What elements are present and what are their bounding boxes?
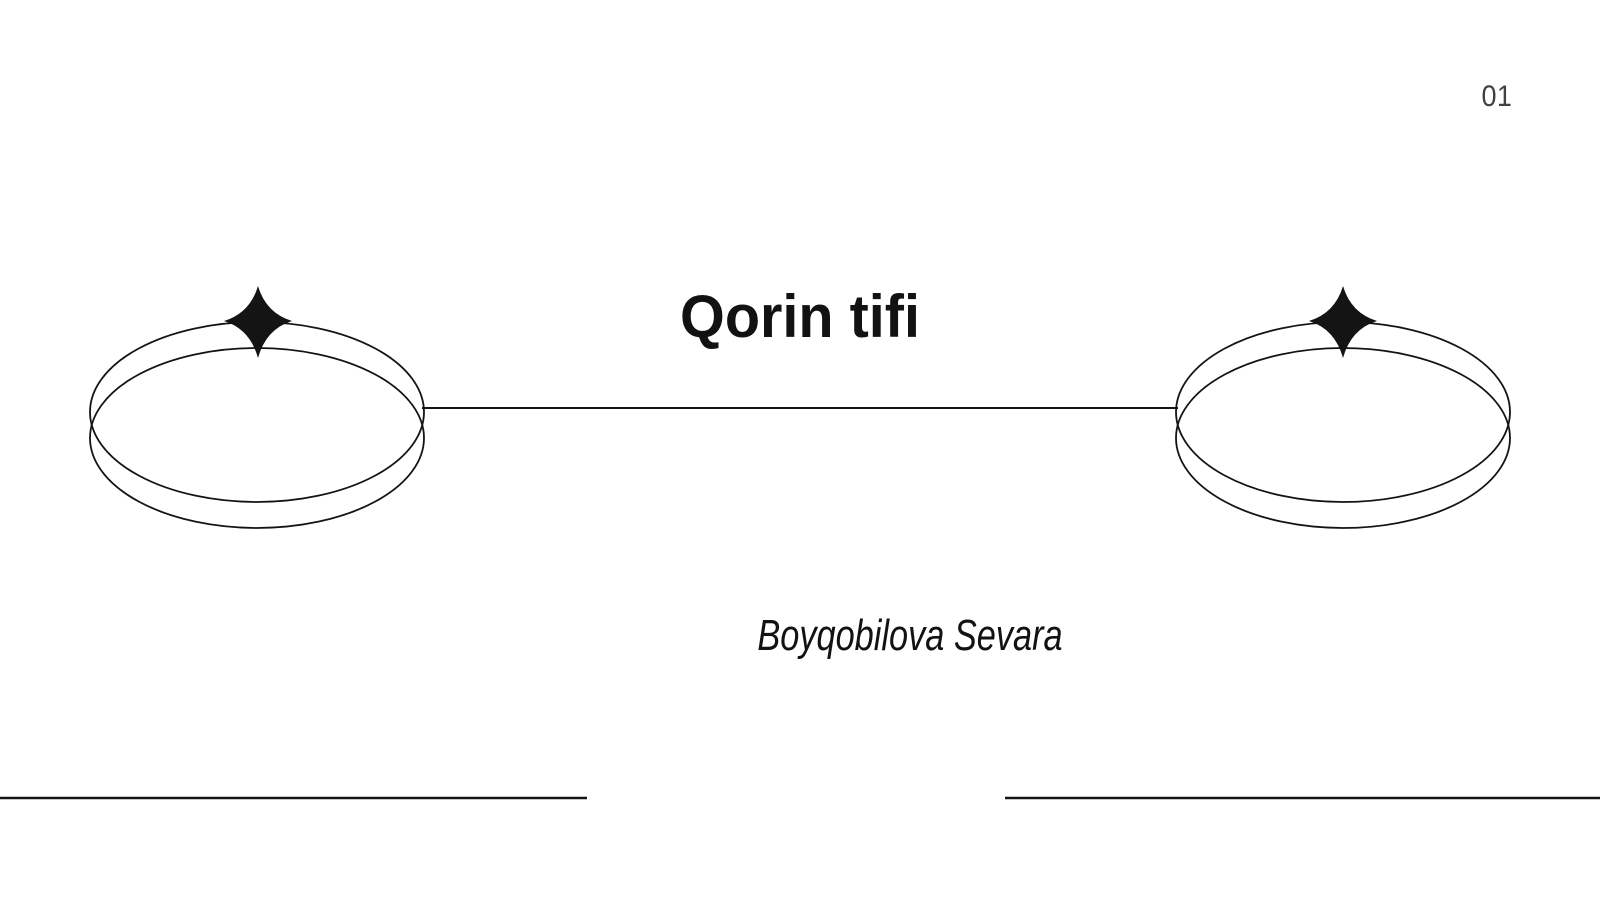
right-ring-bottom-ellipse [1176, 348, 1510, 528]
left-ring [90, 286, 424, 528]
decor-layer [0, 0, 1600, 900]
slide-author: Boyqobilova Sevara [757, 614, 1062, 658]
slide-title: Qorin tifi [680, 287, 920, 347]
right-ring [1176, 286, 1510, 528]
sparkle-icon-left [224, 286, 292, 358]
left-ring-bottom-ellipse [90, 348, 424, 528]
page-number: 01 [1481, 82, 1512, 112]
sparkle-icon-right [1309, 286, 1377, 358]
presentation-slide: 01 Qorin tifi Boyqobilova Sevara [0, 0, 1600, 900]
